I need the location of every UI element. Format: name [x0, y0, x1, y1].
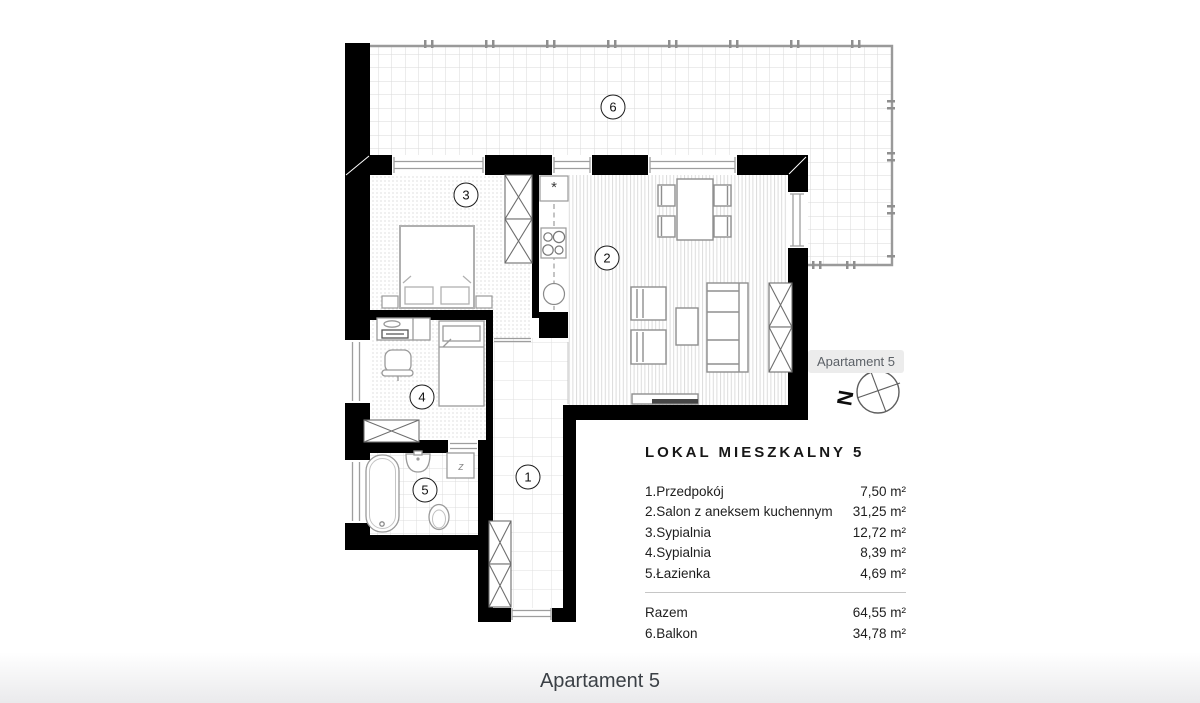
room-badge-balcony: 6	[601, 95, 626, 120]
legend-total-row: Razem 64,55 m²	[645, 605, 906, 627]
total-label: Razem	[645, 605, 688, 620]
room-area: 12,72 m²	[853, 525, 906, 540]
room-badge-bathroom: 5	[413, 478, 438, 503]
legend-balcony-row: 6.Balkon 34,78 m²	[645, 626, 906, 648]
balcony-area: 34,78 m²	[853, 626, 906, 641]
room-label: 4.Sypialnia	[645, 545, 711, 560]
legend-row: 2.Salon z aneksem kuchennym 31,25 m²	[645, 504, 906, 524]
legend-row: 3.Sypialnia 12,72 m²	[645, 525, 906, 545]
fridge-symbol: *	[551, 179, 557, 196]
legend-totals: Razem 64,55 m² 6.Balkon 34,78 m²	[645, 605, 906, 648]
legend-row: 1.Przedpokój 7,50 m²	[645, 484, 906, 504]
room-label: 5.Łazienka	[645, 566, 710, 581]
compass-north-letter: N	[832, 388, 857, 407]
room-area: 4,69 m²	[860, 566, 906, 581]
room-badge-hallway: 1	[516, 465, 541, 490]
room-label: 2.Salon z aneksem kuchennym	[645, 504, 833, 519]
washer-label: z	[457, 461, 464, 473]
legend-title: LOKAL MIESZKALNY 5	[645, 444, 906, 461]
legend-divider	[645, 592, 906, 593]
room-area: 7,50 m²	[860, 484, 906, 499]
room-label: 1.Przedpokój	[645, 484, 724, 499]
apartment-tooltip: Apartament 5	[808, 350, 904, 373]
area-legend: LOKAL MIESZKALNY 5 1.Przedpokój 7,50 m² …	[645, 444, 906, 648]
balcony-label: 6.Balkon	[645, 626, 698, 641]
total-area: 64,55 m²	[853, 605, 906, 620]
floor-plan-viewer: *	[0, 0, 1200, 703]
legend-row: 5.Łazienka 4,69 m²	[645, 566, 906, 586]
room-label: 3.Sypialnia	[645, 525, 711, 540]
room-badge-bedroom-2: 4	[410, 385, 435, 410]
page-title: Apartament 5	[0, 670, 1200, 693]
room-badge-bedroom-1: 3	[454, 183, 479, 208]
room-area: 8,39 m²	[860, 545, 906, 560]
legend-row: 4.Sypialnia 8,39 m²	[645, 545, 906, 565]
kitchen	[540, 176, 568, 310]
hallway-wardrobe	[489, 521, 511, 607]
room-area: 31,25 m²	[853, 504, 906, 519]
legend-rows: 1.Przedpokój 7,50 m² 2.Salon z aneksem k…	[645, 484, 906, 586]
room-badge-living-room: 2	[595, 246, 620, 271]
compass: N	[832, 371, 900, 413]
